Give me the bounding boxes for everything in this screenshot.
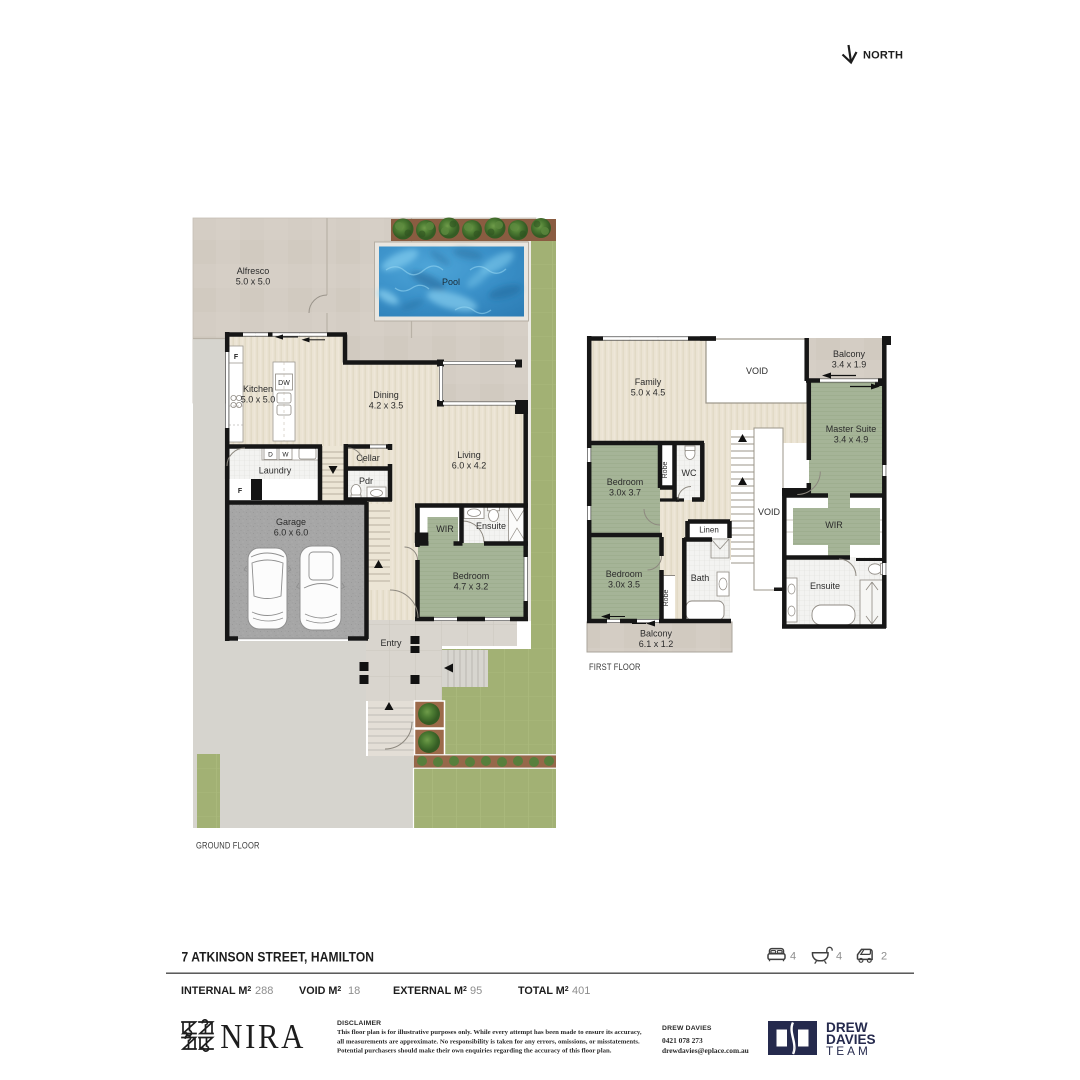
- svg-text:GROUND FLOOR: GROUND FLOOR: [196, 840, 260, 851]
- svg-text:Robe: Robe: [663, 590, 670, 607]
- svg-text:NORTH: NORTH: [863, 50, 903, 62]
- svg-text:Garage: Garage: [276, 517, 306, 527]
- svg-text:Potential purchasers should ma: Potential purchasers should make their o…: [337, 1048, 612, 1055]
- svg-text:NIRA: NIRA: [220, 1018, 306, 1056]
- svg-text:Laundry: Laundry: [259, 466, 292, 476]
- svg-text:Family: Family: [635, 377, 662, 387]
- svg-text:Living: Living: [457, 450, 481, 460]
- svg-text:TEAM: TEAM: [826, 1044, 871, 1058]
- svg-text:VOID M2: VOID M2: [299, 985, 341, 997]
- svg-text:DREW DAVIES: DREW DAVIES: [662, 1025, 712, 1032]
- svg-text:401: 401: [572, 985, 590, 997]
- svg-text:6.1 x 1.2: 6.1 x 1.2: [639, 639, 674, 649]
- svg-text:3.0x 3.7: 3.0x 3.7: [609, 488, 641, 498]
- svg-text:4: 4: [790, 951, 796, 963]
- svg-text:6.0 x 4.2: 6.0 x 4.2: [452, 461, 487, 471]
- svg-text:Balcony: Balcony: [640, 629, 673, 639]
- svg-text:5.0 x 5.0: 5.0 x 5.0: [236, 277, 271, 287]
- svg-text:Bedroom: Bedroom: [607, 477, 644, 487]
- svg-text:2: 2: [881, 951, 887, 963]
- svg-text:Balcony: Balcony: [833, 349, 866, 359]
- svg-text:EXTERNAL M2: EXTERNAL M2: [393, 985, 467, 997]
- svg-text:95: 95: [470, 985, 482, 997]
- svg-text:WIR: WIR: [436, 524, 454, 534]
- svg-text:Ensuite: Ensuite: [476, 521, 506, 531]
- svg-text:INTERNAL M2: INTERNAL M2: [181, 985, 251, 997]
- svg-text:Bedroom: Bedroom: [453, 571, 490, 581]
- svg-text:18: 18: [348, 985, 360, 997]
- svg-text:VOID: VOID: [758, 507, 781, 517]
- svg-text:WC: WC: [682, 468, 697, 478]
- svg-text:F: F: [238, 488, 243, 495]
- svg-text:4.2 x 3.5: 4.2 x 3.5: [369, 401, 404, 411]
- svg-text:Master Suite: Master Suite: [826, 424, 877, 434]
- svg-text:0421 078 273: 0421 078 273: [662, 1036, 703, 1045]
- svg-text:This floor plan is for illustr: This floor plan is for illustrative purp…: [337, 1029, 642, 1036]
- svg-text:Entry: Entry: [380, 638, 402, 648]
- svg-text:Bath: Bath: [691, 573, 710, 583]
- svg-text:5.0 x 5.0: 5.0 x 5.0: [241, 395, 276, 405]
- svg-text:F: F: [234, 354, 239, 361]
- svg-text:Linen: Linen: [699, 526, 719, 535]
- svg-text:Kitchen: Kitchen: [243, 384, 273, 394]
- svg-text:Robe: Robe: [662, 462, 669, 479]
- svg-text:DISCLAIMER: DISCLAIMER: [337, 1020, 381, 1027]
- svg-text:D: D: [268, 452, 273, 459]
- svg-text:W: W: [282, 452, 289, 459]
- svg-text:FIRST FLOOR: FIRST FLOOR: [589, 661, 641, 672]
- svg-text:288: 288: [255, 985, 273, 997]
- svg-text:4.7 x 3.2: 4.7 x 3.2: [454, 582, 489, 592]
- svg-text:Bedroom: Bedroom: [606, 569, 643, 579]
- svg-text:Pdr: Pdr: [359, 476, 373, 486]
- svg-text:Alfresco: Alfresco: [237, 266, 270, 276]
- svg-text:Cellar: Cellar: [356, 453, 380, 463]
- svg-text:3.4 x 4.9: 3.4 x 4.9: [834, 435, 869, 445]
- svg-text:5.0 x 4.5: 5.0 x 4.5: [631, 388, 666, 398]
- svg-text:Dining: Dining: [373, 390, 399, 400]
- svg-text:6.0 x 6.0: 6.0 x 6.0: [274, 528, 309, 538]
- svg-text:VOID: VOID: [746, 366, 769, 376]
- svg-text:Ensuite: Ensuite: [810, 581, 840, 591]
- svg-text:4: 4: [836, 951, 842, 963]
- svg-text:WIR: WIR: [825, 520, 843, 530]
- svg-text:all measurements are approxima: all measurements are approximate. No res…: [337, 1039, 640, 1046]
- svg-text:3.4 x 1.9: 3.4 x 1.9: [832, 360, 867, 370]
- svg-text:3.0x 3.5: 3.0x 3.5: [608, 580, 640, 590]
- svg-text:7 ATKINSON STREET, HAMILTON: 7 ATKINSON STREET, HAMILTON: [181, 949, 374, 965]
- svg-text:drewdavies@eplace.com.au: drewdavies@eplace.com.au: [662, 1046, 749, 1055]
- svg-text:TOTAL M2: TOTAL M2: [518, 985, 569, 997]
- svg-text:Pool: Pool: [442, 277, 460, 287]
